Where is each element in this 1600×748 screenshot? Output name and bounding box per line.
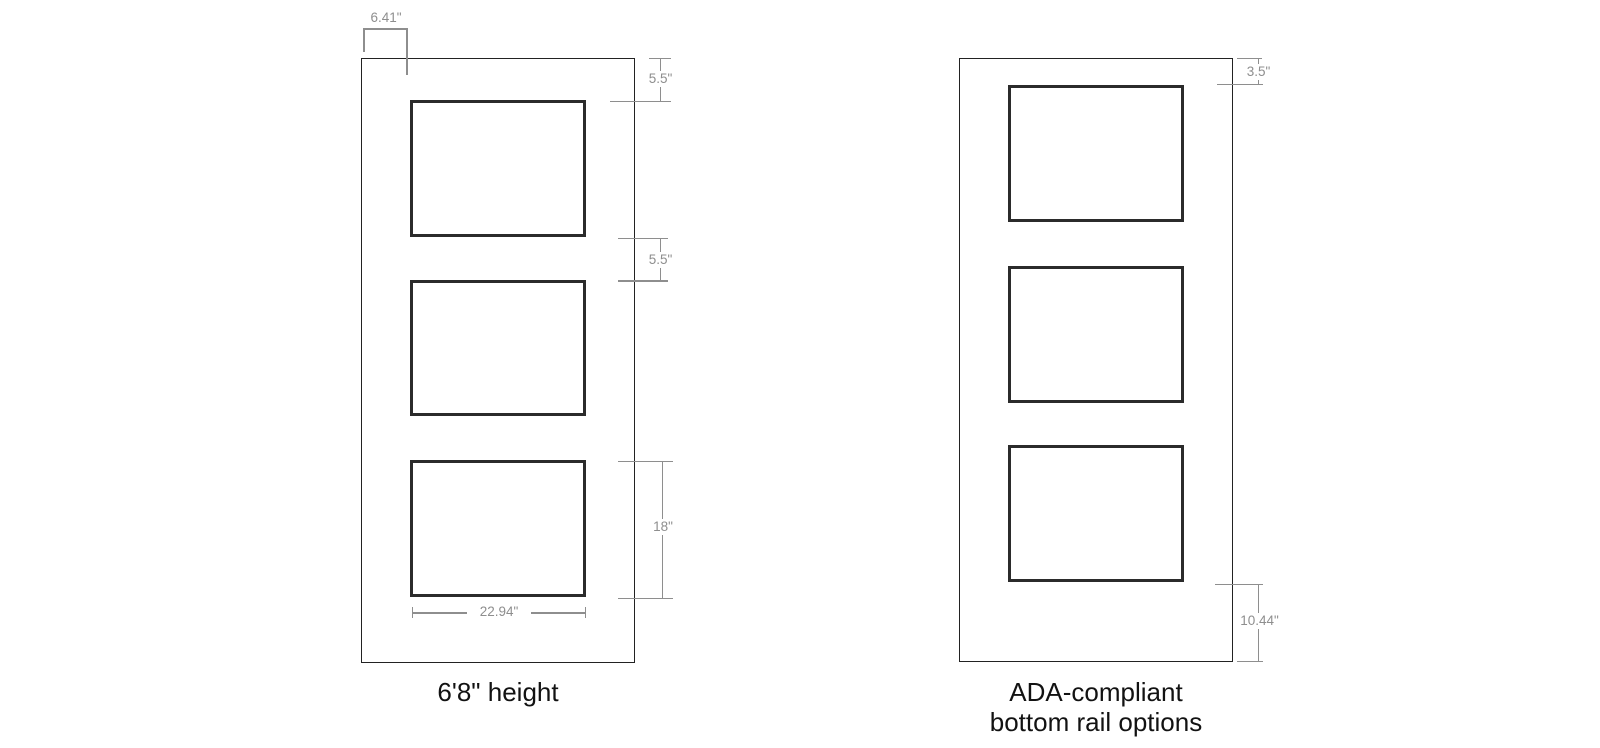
door-panel-middle [1008, 266, 1184, 403]
dim-ext-panel-height-upper [618, 461, 673, 463]
door-panel-bottom [1008, 445, 1184, 582]
door-panel-bottom [410, 460, 586, 597]
dim-label-stile-width: 6.41" [356, 10, 416, 26]
door-panel-top [1008, 85, 1184, 222]
dim-label-mid-rail: 5.5" [646, 252, 675, 268]
left-figure-caption: 6'8" height [361, 677, 635, 707]
dim-label-bottom-rail: 10.44" [1237, 613, 1282, 629]
dim-ext-top-rail-lower [1217, 84, 1263, 86]
door-panel-middle [410, 280, 586, 416]
dim-tick-bottom-rail-lower [1237, 661, 1263, 663]
door-diagram-canvas: 6.41" 5.5" 5.5" 18" 22.94" 6'8" height [0, 0, 1600, 748]
dim-label-panel-width: 22.94" [467, 604, 531, 620]
dim-label-top-rail: 3.5" [1244, 64, 1273, 80]
right-figure-caption-line1: ADA-compliant [959, 677, 1233, 707]
dim-tick-panel-width-left [412, 607, 414, 618]
dim-label-top-rail: 5.5" [646, 71, 675, 87]
dim-tick-panel-width-right [585, 607, 587, 618]
dim-label-panel-height: 18" [650, 519, 676, 535]
right-figure-caption-line2: bottom rail options [959, 707, 1233, 737]
dim-ext-bottom-rail-upper [1215, 584, 1263, 586]
dim-line-stile-width [363, 28, 407, 30]
dim-ext-panel-height-lower [618, 598, 673, 600]
dim-tick-stile-left [363, 28, 365, 52]
dim-tick-stile-right [406, 28, 408, 75]
door-panel-top [410, 100, 586, 237]
dim-ext-top-rail-lower [610, 101, 671, 103]
